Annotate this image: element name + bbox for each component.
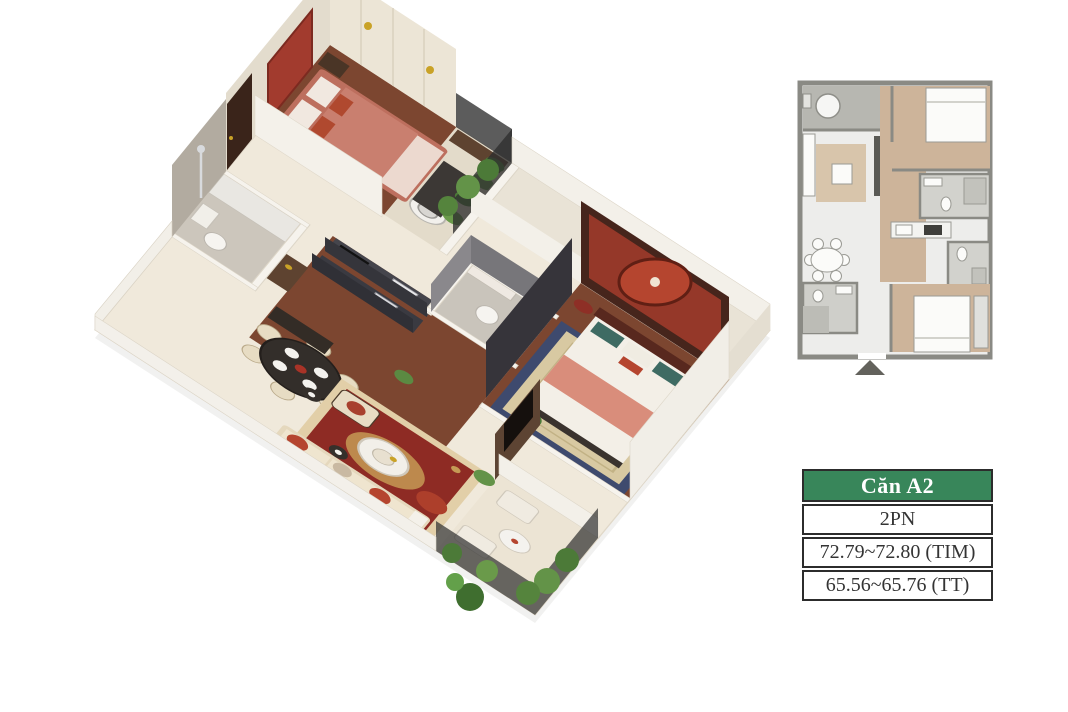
plan-entry-gap [858,353,886,359]
page: Căn A2 2PN 72.79~72.80 (TIM) 65.56~65.76… [0,0,1068,712]
plan-sofa [803,134,815,196]
floor-plan-2d [796,78,996,378]
sconce-icon [364,22,372,30]
plan-coffee-table [832,164,852,184]
toilet-icon [813,290,823,302]
shower-head-icon [197,145,205,153]
toilet-icon [957,247,967,261]
unit-area-tt: 65.56~65.76 (TT) [802,570,993,601]
door-knob-icon [229,136,233,140]
apartment-3d-render [0,0,798,712]
unit-info-table: Căn A2 2PN 72.79~72.80 (TIM) 65.56~65.76… [802,469,993,603]
toilet-icon [941,197,951,211]
unit-bedrooms: 2PN [802,504,993,535]
unit-name-header: Căn A2 [802,469,993,502]
sconce-icon [426,66,434,74]
unit-area-tim: 72.79~72.80 (TIM) [802,537,993,568]
plan-kitchen [891,222,951,238]
plan-bed2 [914,296,970,352]
plan-tv [874,136,880,196]
plan-loggia [803,86,880,130]
plan-bed1 [926,88,986,142]
washing-machine-icon [816,94,840,118]
entrance-arrow-icon [855,360,885,375]
